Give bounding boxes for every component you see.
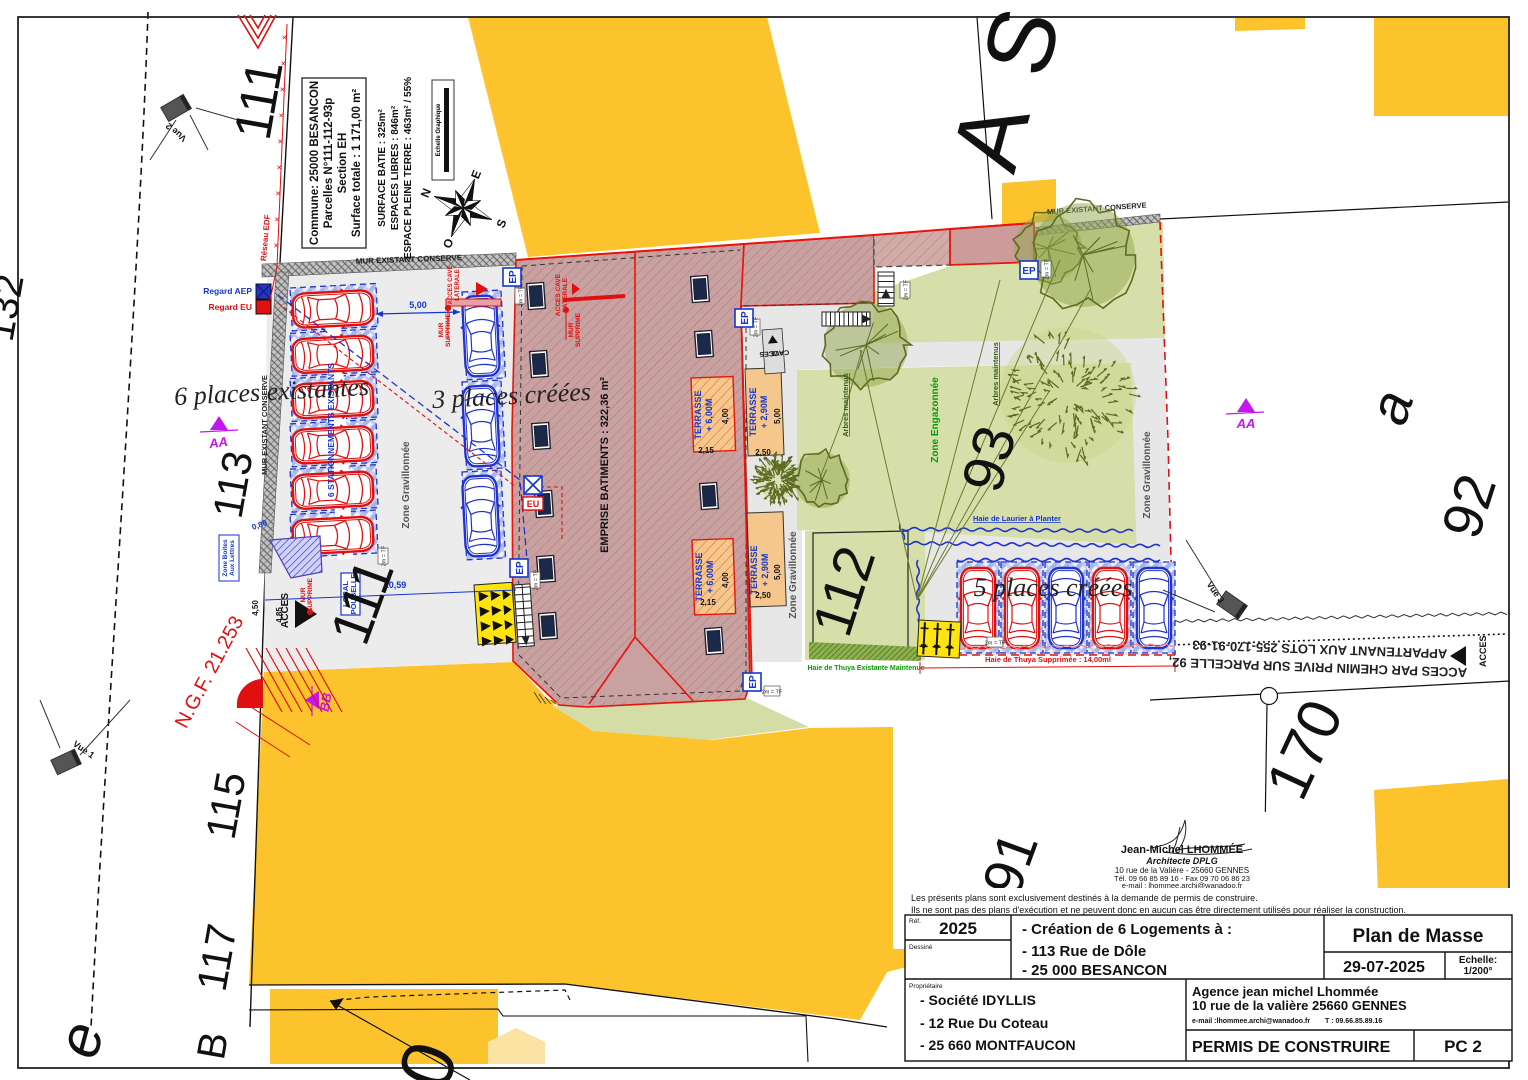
svg-text:Propriétaire: Propriétaire xyxy=(909,983,943,990)
svg-text:2025: 2025 xyxy=(939,919,977,938)
svg-text:TERRASSE: TERRASSE xyxy=(693,390,703,439)
svg-text:2,50: 2,50 xyxy=(755,591,771,600)
svg-text:TERRASSE: TERRASSE xyxy=(748,387,758,436)
svg-text:Dessiné: Dessiné xyxy=(909,944,933,951)
svg-text:Parcelles N°111-112-93p: Parcelles N°111-112-93p xyxy=(323,98,335,229)
svg-text:ESPACES LIBRES : 846m²: ESPACES LIBRES : 846m² xyxy=(390,105,401,230)
svg-text:- 113 Rue de Dôle: - 113 Rue de Dôle xyxy=(1022,943,1146,960)
svg-text:AA: AA xyxy=(1236,416,1256,431)
svg-text:29-07-2025: 29-07-2025 xyxy=(1343,959,1425,976)
svg-text:ACCES CAVE: ACCES CAVE xyxy=(555,273,562,316)
svg-text:✕: ✕ xyxy=(276,165,282,172)
svg-text:Haie de Thuya Existante Mainte: Haie de Thuya Existante Maintenue xyxy=(807,665,924,672)
svg-text:2m = TF: 2m = TF xyxy=(904,279,910,300)
svg-text:SUPPRIME: SUPPRIME xyxy=(307,577,314,612)
svg-text:4,00: 4,00 xyxy=(721,408,730,424)
svg-text:Agence jean michel Lhommée: Agence jean michel Lhommée xyxy=(1192,984,1378,999)
svg-text:- 12 Rue Du Coteau: - 12 Rue Du Coteau xyxy=(920,1015,1048,1031)
svg-text:Commune: 25000 BESANCON: Commune: 25000 BESANCON xyxy=(309,81,321,245)
svg-text:Zone Gravillonnée: Zone Gravillonnée xyxy=(1142,431,1153,519)
svg-text:PC 2: PC 2 xyxy=(1444,1037,1482,1056)
svg-text:Section EH: Section EH xyxy=(337,133,349,194)
svg-text:2m = TF: 2m = TF xyxy=(534,569,540,590)
svg-text:5,00: 5,00 xyxy=(409,300,427,310)
svg-text:✕: ✕ xyxy=(274,217,280,224)
svg-text:Jean-Michel LHOMMÉE: Jean-Michel LHOMMÉE xyxy=(1121,843,1243,856)
svg-text:Regard AEP: Regard AEP xyxy=(203,286,252,296)
svg-text:MUR: MUR xyxy=(438,322,445,337)
svg-text:✕: ✕ xyxy=(273,243,279,250)
svg-text:T : 09.66.85.89.16: T : 09.66.85.89.16 xyxy=(1325,1018,1382,1025)
svg-text:ESPACE PLEINE TERRE : 463m² /: ESPACE PLEINE TERRE : 463m² / 55% xyxy=(403,77,414,259)
svg-text:ACCES CAVE: ACCES CAVE xyxy=(448,266,454,305)
svg-text:Zone Boites: Zone Boites xyxy=(222,539,229,577)
svg-text:PERMIS DE CONSTRUIRE: PERMIS DE CONSTRUIRE xyxy=(1192,1039,1391,1056)
svg-text:2m = TF: 2m = TF xyxy=(1045,258,1051,279)
svg-text:Ils ne sont pas des plans d'ex: Ils ne sont pas des plans d'exécution et… xyxy=(911,905,1406,915)
svg-text:4,50: 4,50 xyxy=(251,600,260,616)
svg-text:2m = TF: 2m = TF xyxy=(382,545,388,566)
svg-text:2m = TF: 2m = TF xyxy=(985,641,1006,647)
svg-text:LATERALE: LATERALE xyxy=(562,277,569,312)
svg-text:SUPPRIME: SUPPRIME xyxy=(445,312,452,347)
svg-text:2m = TF: 2m = TF xyxy=(762,690,783,696)
svg-text:MUR: MUR xyxy=(568,322,575,337)
svg-text:EU: EU xyxy=(527,499,540,509)
svg-text:Zone Engazonnée: Zone Engazonnée xyxy=(930,377,941,463)
svg-text:- 25 000 BESANCON: - 25 000 BESANCON xyxy=(1022,962,1167,979)
svg-text:5,00: 5,00 xyxy=(773,564,782,580)
svg-text:Réf.: Réf. xyxy=(909,918,921,925)
svg-text:✕: ✕ xyxy=(281,35,287,42)
svg-text:✕: ✕ xyxy=(275,191,281,198)
svg-text:5 places créées: 5 places créées xyxy=(974,573,1133,602)
svg-text:Surface totale : 1 171,00 m²: Surface totale : 1 171,00 m² xyxy=(351,89,363,237)
svg-text:MUR: MUR xyxy=(300,587,307,602)
svg-text:TERRASSE: TERRASSE xyxy=(694,552,704,601)
svg-text:2,15: 2,15 xyxy=(698,446,714,455)
svg-text:4,85: 4,85 xyxy=(275,607,284,623)
svg-text:+ 2,90M: + 2,90M xyxy=(759,396,769,429)
svg-text:Arbres maintenus: Arbres maintenus xyxy=(991,342,1000,406)
svg-text:ACCES: ACCES xyxy=(1478,635,1488,667)
svg-text:CAVE: CAVE xyxy=(770,348,790,356)
svg-text:Zone Gravillonnée: Zone Gravillonnée xyxy=(788,531,799,619)
svg-text:5,00: 5,00 xyxy=(773,408,782,424)
svg-text:4,00: 4,00 xyxy=(721,572,730,588)
svg-text:SUPPRIME: SUPPRIME xyxy=(575,312,582,347)
svg-text:Aux Lettres: Aux Lettres xyxy=(229,540,236,576)
svg-text:Regard EU: Regard EU xyxy=(209,302,252,312)
svg-text:+ 6,00M: + 6,00M xyxy=(704,399,714,432)
svg-text:TERRASSE: TERRASSE xyxy=(749,545,759,594)
svg-text:+ 2,90M: + 2,90M xyxy=(760,554,770,587)
svg-text:1/200°: 1/200° xyxy=(1463,966,1492,977)
svg-text:Echelle Graphique: Echelle Graphique xyxy=(436,103,442,156)
svg-text:Arbres maintenus: Arbres maintenus xyxy=(841,373,850,437)
svg-text:EMPRISE BATIMENTS : 322,36 m²: EMPRISE BATIMENTS : 322,36 m² xyxy=(599,377,611,553)
svg-text:Plan de Masse: Plan de Masse xyxy=(1353,926,1484,947)
svg-text:2m = TF: 2m = TF xyxy=(519,285,525,306)
svg-text:Haie de Thuya Supprimée : 14,0: Haie de Thuya Supprimée : 14,00ml xyxy=(985,655,1111,664)
svg-text:e-mail :lhommee.archi@wanadoo.: e-mail :lhommee.archi@wanadoo.fr xyxy=(1192,1018,1310,1025)
svg-text:2,50: 2,50 xyxy=(755,448,771,457)
svg-text:Zone Gravillonnée: Zone Gravillonnée xyxy=(401,441,412,529)
svg-text:Les présents plans sont exclus: Les présents plans sont exclusivement de… xyxy=(911,893,1258,903)
svg-text:- Société IDYLLIS: - Société IDYLLIS xyxy=(920,992,1036,1008)
svg-text:SURFACE BATIE : 325m²: SURFACE BATIE : 325m² xyxy=(377,109,388,227)
svg-text:- Création de 6 Logements à :: - Création de 6 Logements à : xyxy=(1022,921,1232,938)
svg-text:Architecte DPLG: Architecte DPLG xyxy=(1145,856,1218,866)
svg-text:- 25 660 MONTFAUCON: - 25 660 MONTFAUCON xyxy=(920,1037,1076,1053)
svg-text:2m = TF: 2m = TF xyxy=(754,316,760,337)
svg-text:10 rue de la valière 25660 GEN: 10 rue de la valière 25660 GENNES xyxy=(1192,998,1407,1013)
svg-text:Haie de Laurier à Planter: Haie de Laurier à Planter xyxy=(973,514,1061,523)
svg-text:+ 6,00M: + 6,00M xyxy=(705,561,715,594)
svg-text:LATERALE: LATERALE xyxy=(455,269,461,301)
svg-text:Echelle:: Echelle: xyxy=(1459,955,1497,966)
svg-text:2,15: 2,15 xyxy=(700,598,716,607)
